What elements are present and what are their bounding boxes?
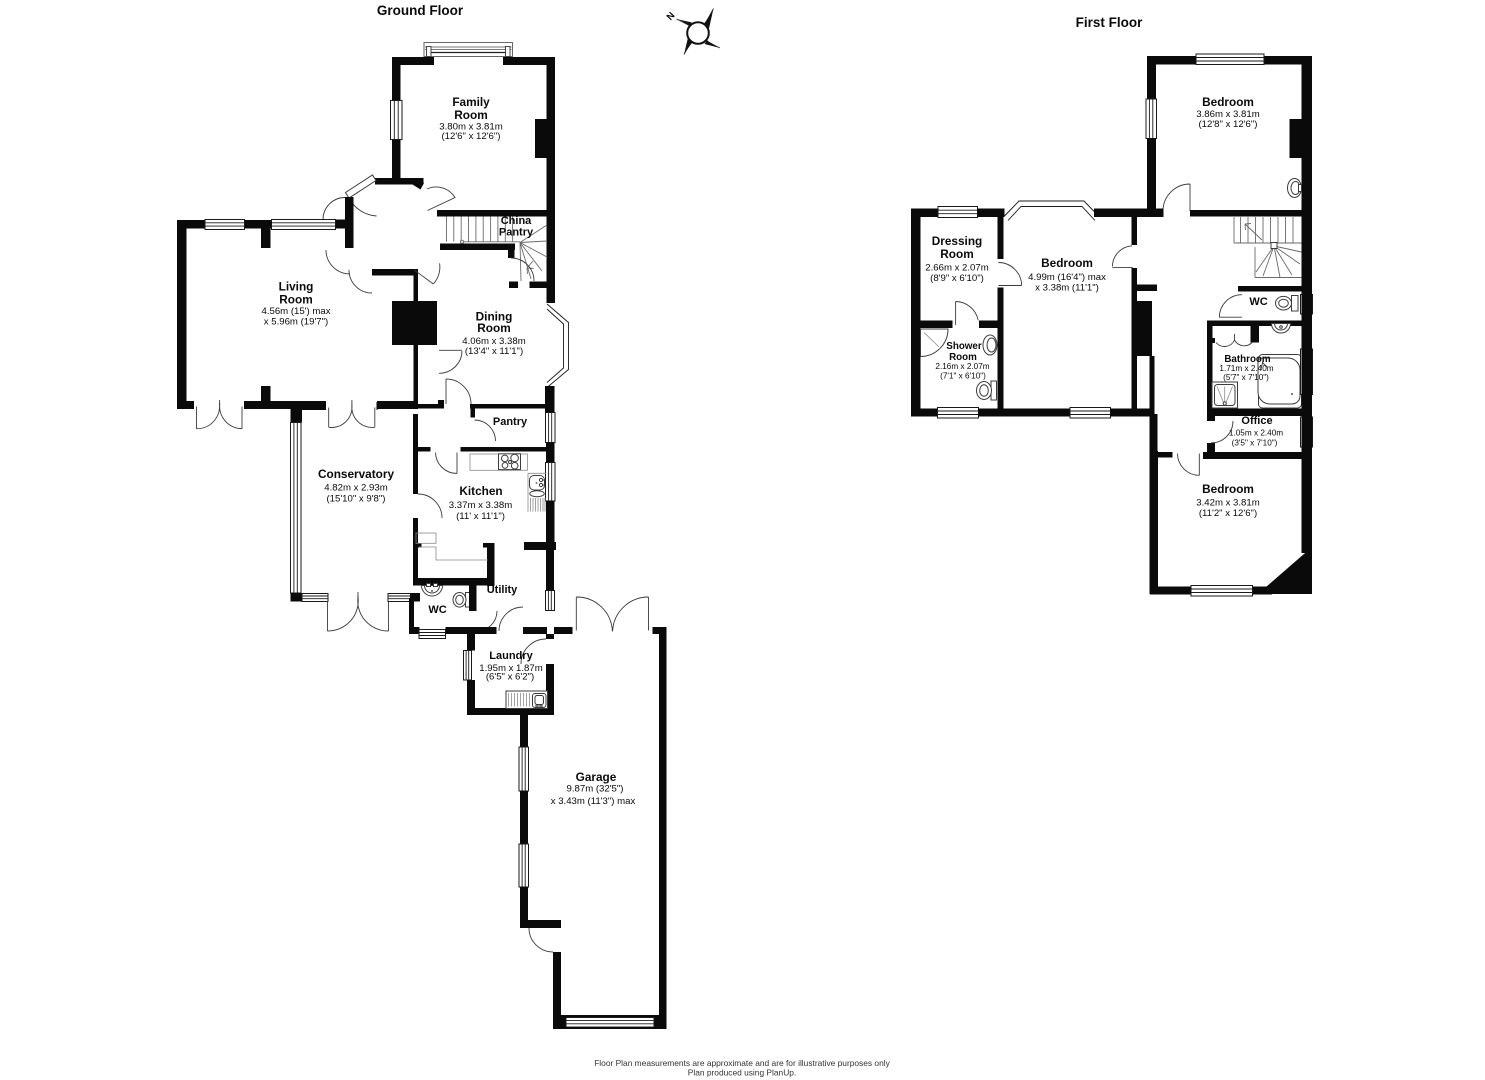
svg-text:Floor Plan measurements are ap: Floor Plan measurements are approximate …: [594, 1058, 890, 1068]
svg-text:1.71m x 2.40m: 1.71m x 2.40m: [1219, 364, 1273, 373]
svg-text:Ground Floor: Ground Floor: [377, 3, 464, 18]
svg-text:x 3.43m (11'3") max: x 3.43m (11'3") max: [551, 796, 636, 807]
svg-text:x 5.96m (19'7"): x 5.96m (19'7"): [264, 317, 328, 328]
svg-text:Laundry: Laundry: [489, 650, 533, 662]
svg-text:Room: Room: [477, 321, 510, 335]
svg-text:(12'6" x 12'6"): (12'6" x 12'6"): [441, 131, 500, 142]
svg-text:Room: Room: [940, 247, 973, 261]
svg-text:3.42m x 3.81m: 3.42m x 3.81m: [1196, 498, 1259, 509]
svg-text:First Floor: First Floor: [1076, 15, 1143, 30]
svg-text:Bedroom: Bedroom: [1202, 482, 1254, 496]
svg-text:(15'10" x 9'8"): (15'10" x 9'8"): [326, 494, 385, 505]
svg-text:1.05m x 2.40m: 1.05m x 2.40m: [1229, 429, 1283, 438]
svg-text:Plan produced using PlanUp.: Plan produced using PlanUp.: [688, 1068, 796, 1078]
svg-text:Dressing: Dressing: [932, 234, 982, 248]
svg-text:4.99m (16'4") max: 4.99m (16'4") max: [1028, 272, 1106, 283]
svg-text:WC: WC: [1249, 296, 1267, 308]
svg-text:Conservatory: Conservatory: [318, 467, 394, 481]
svg-text:(12'8" x 12'6"): (12'8" x 12'6"): [1198, 119, 1257, 130]
svg-text:(11'2" x 12'6"): (11'2" x 12'6"): [1199, 508, 1257, 519]
svg-text:(3'5" x 7'10"): (3'5" x 7'10"): [1232, 439, 1278, 448]
svg-text:Pantry: Pantry: [493, 416, 528, 428]
svg-text:(8'9" x 6'10"): (8'9" x 6'10"): [930, 273, 984, 284]
svg-text:Room: Room: [279, 293, 312, 307]
svg-text:(13'4" x 11'1"): (13'4" x 11'1"): [465, 346, 523, 357]
svg-text:2.16m x 2.07m: 2.16m x 2.07m: [935, 362, 989, 371]
svg-text:4.56m (15') max: 4.56m (15') max: [261, 306, 330, 317]
svg-text:Pantry: Pantry: [499, 227, 534, 239]
svg-text:Office: Office: [1241, 415, 1272, 427]
svg-text:Living: Living: [279, 280, 314, 294]
svg-text:9.87m (32'5"): 9.87m (32'5"): [567, 784, 624, 795]
svg-text:3.37m x 3.38m: 3.37m x 3.38m: [449, 500, 512, 511]
svg-text:Family: Family: [452, 95, 490, 109]
svg-text:Kitchen: Kitchen: [459, 484, 502, 498]
svg-text:Bedroom: Bedroom: [1041, 256, 1093, 270]
svg-text:(11' x 11'1"): (11' x 11'1"): [456, 511, 505, 522]
svg-text:Room: Room: [454, 108, 487, 122]
svg-text:(7'1" x 6'10"): (7'1" x 6'10"): [940, 372, 986, 381]
svg-text:(5'7" x 7'10"): (5'7" x 7'10"): [1223, 373, 1269, 382]
svg-text:China: China: [501, 215, 532, 227]
svg-text:Shower: Shower: [946, 341, 982, 352]
svg-text:(6'5" x 6'2"): (6'5" x 6'2"): [486, 672, 534, 683]
svg-text:4.82m x 2.93m: 4.82m x 2.93m: [324, 483, 387, 494]
svg-text:Utility: Utility: [487, 584, 518, 596]
svg-text:2.66m x 2.07m: 2.66m x 2.07m: [925, 263, 988, 274]
svg-text:WC: WC: [428, 604, 446, 616]
svg-text:x 3.38m (11'1"): x 3.38m (11'1"): [1035, 283, 1099, 294]
svg-text:Garage: Garage: [576, 770, 617, 784]
svg-text:Bedroom: Bedroom: [1202, 95, 1254, 109]
